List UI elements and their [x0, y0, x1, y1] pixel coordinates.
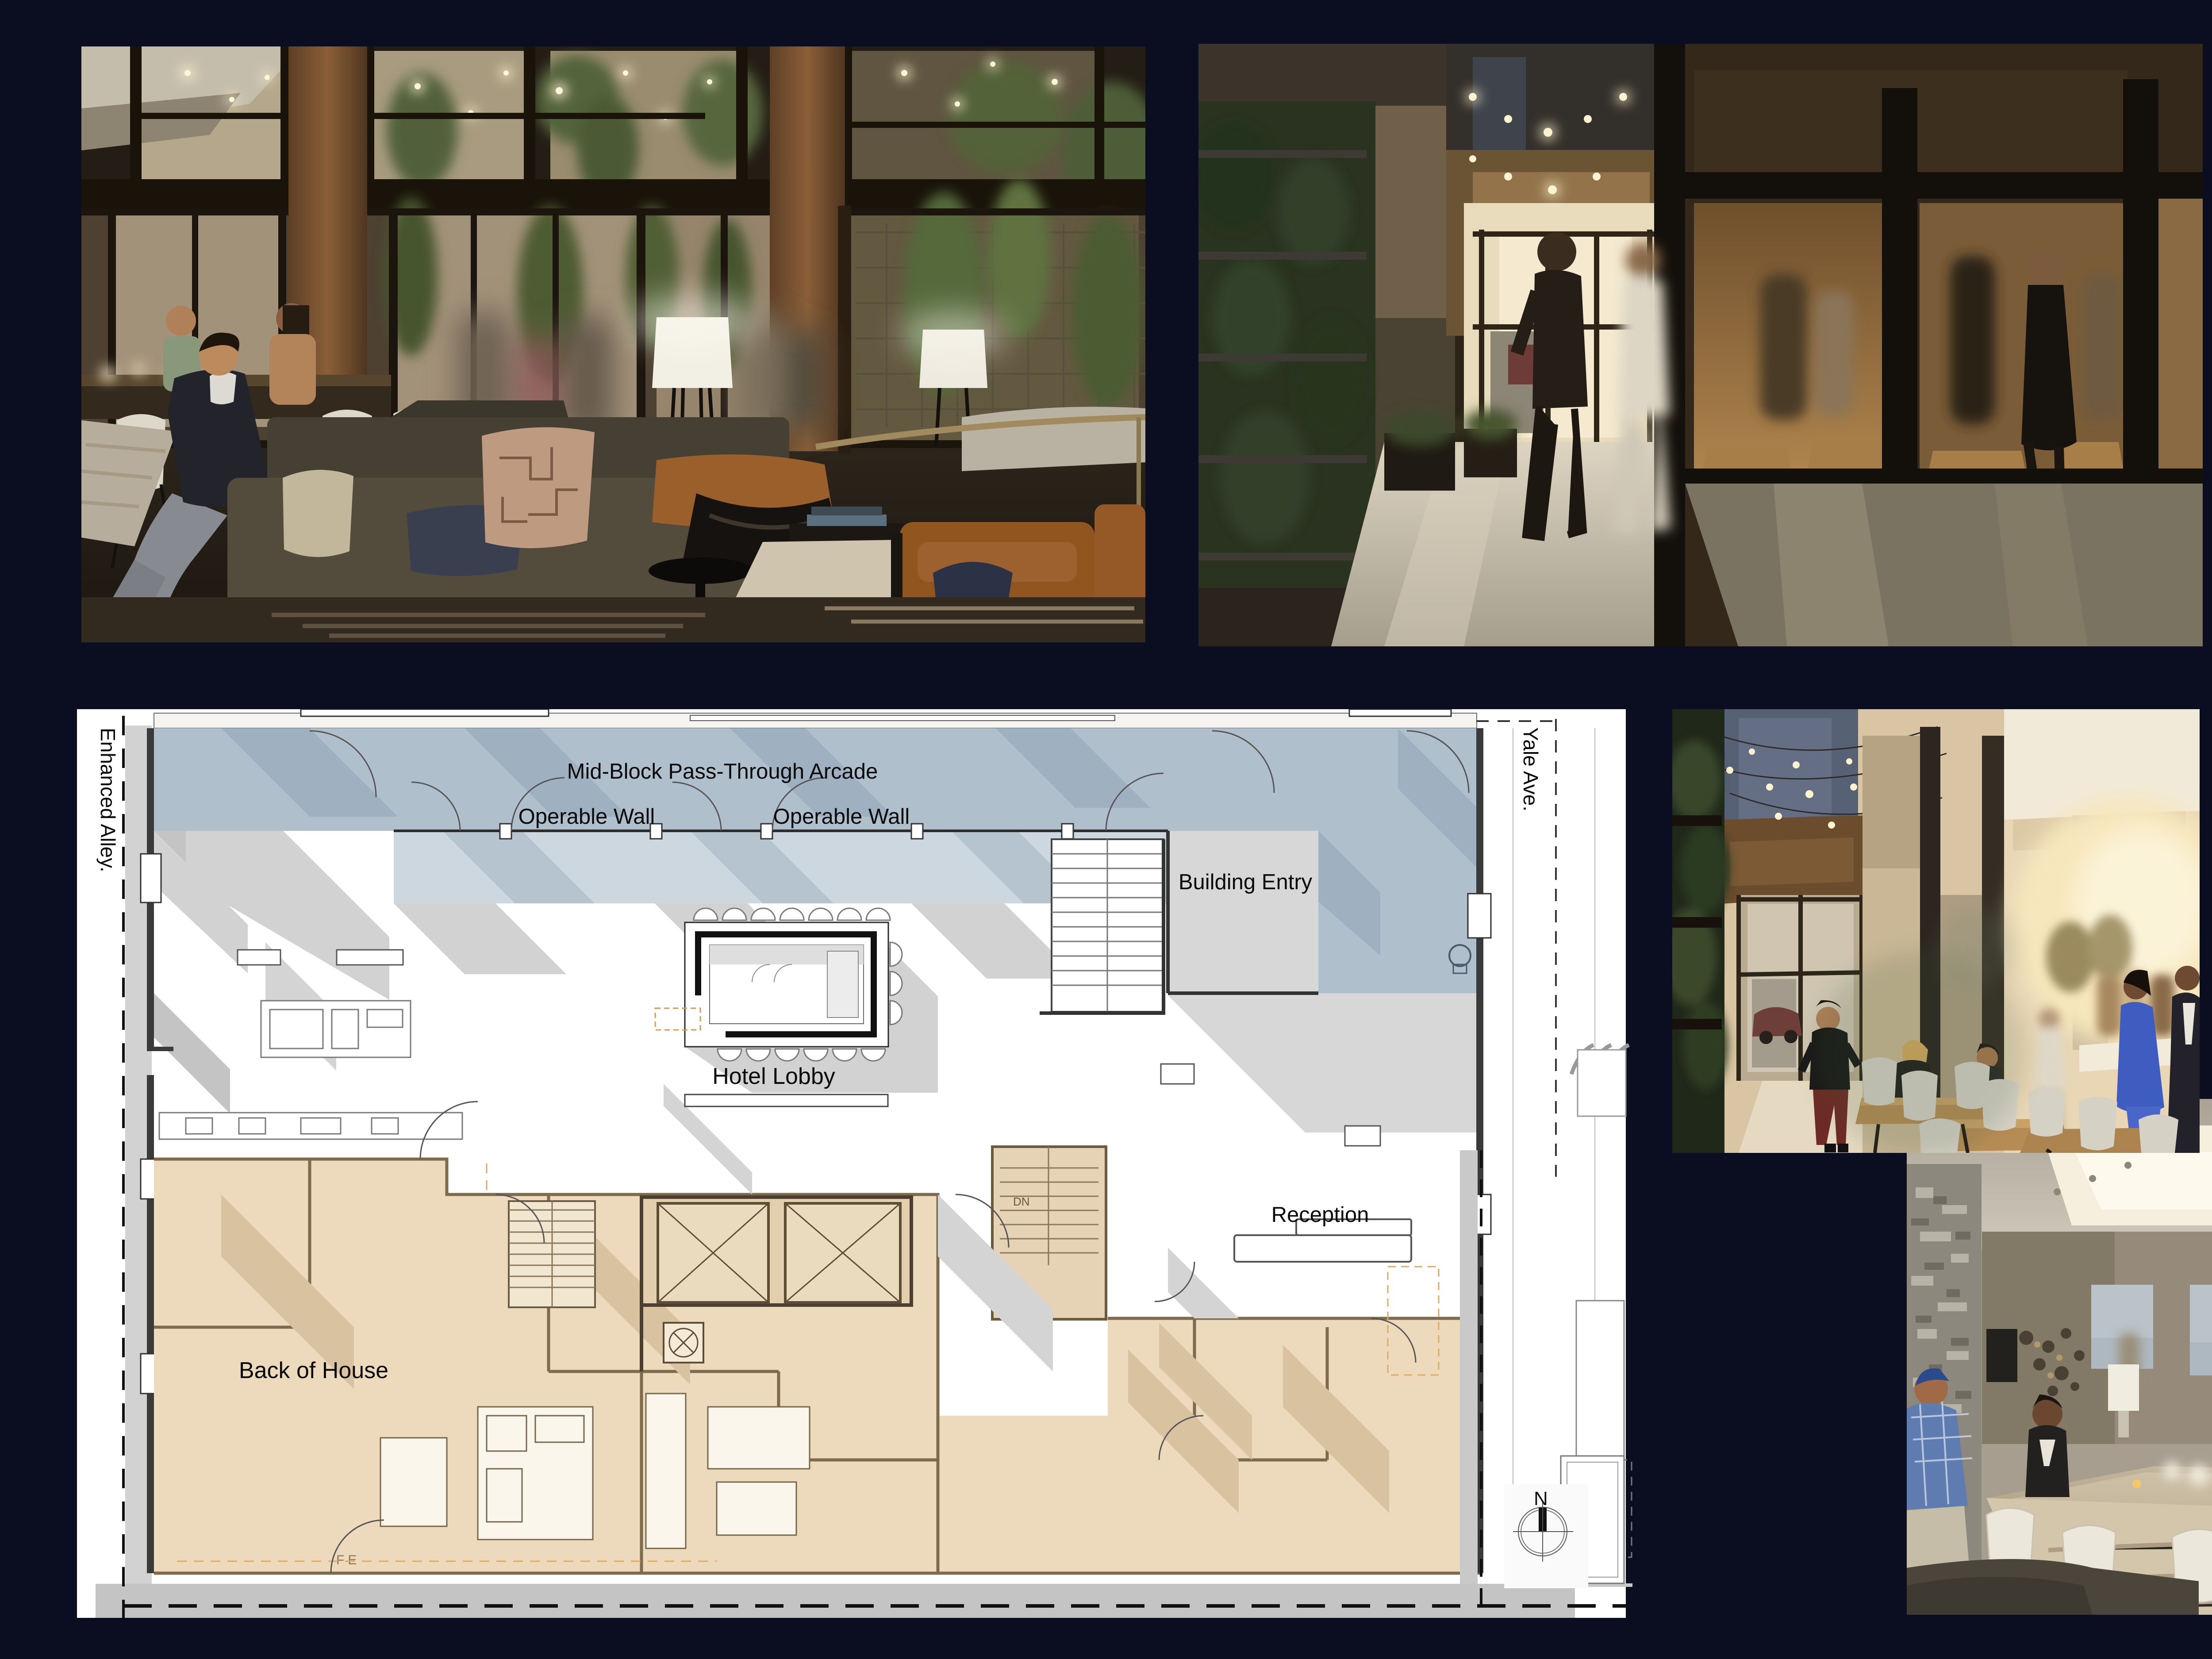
svg-text:FE: FE	[336, 1553, 360, 1567]
svg-text:Mid-Block Pass-Through Arcade: Mid-Block Pass-Through Arcade	[567, 760, 878, 783]
svg-text:Operable Wall: Operable Wall	[518, 805, 655, 829]
svg-text:Operable Wall: Operable Wall	[773, 805, 910, 829]
svg-text:N: N	[1534, 1488, 1548, 1509]
svg-text:Hotel Lobby: Hotel Lobby	[712, 1064, 835, 1089]
svg-text:DN: DN	[1013, 1195, 1030, 1208]
svg-text:Building Entry: Building Entry	[1179, 870, 1313, 894]
svg-text:Reception: Reception	[1271, 1203, 1369, 1227]
svg-text:Yale Ave.: Yale Ave.	[1519, 727, 1542, 811]
svg-text:Back of House: Back of House	[239, 1358, 388, 1383]
svg-text:Enhanced Alley.: Enhanced Alley.	[96, 728, 119, 872]
